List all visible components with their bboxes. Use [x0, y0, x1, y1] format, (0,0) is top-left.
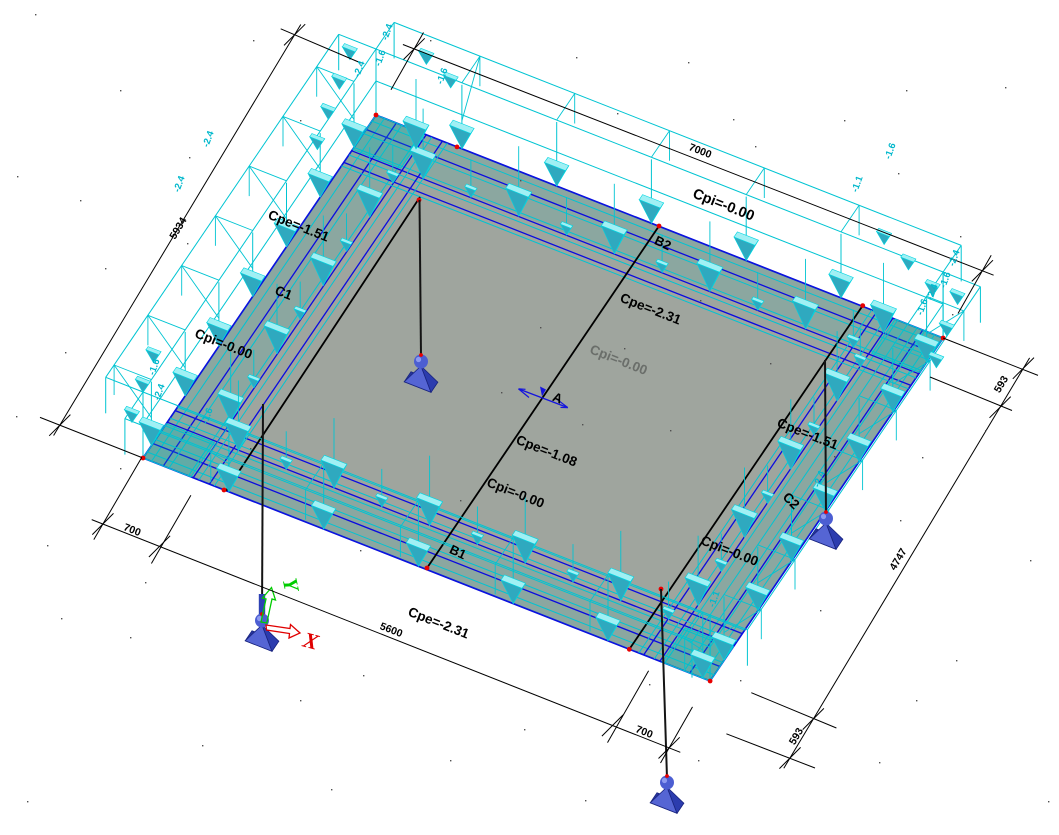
svg-text:Y: Y: [278, 576, 305, 596]
svg-text:-2.4: -2.4: [380, 22, 396, 42]
svg-text:5934: 5934: [167, 215, 189, 241]
svg-text:-2.4: -2.4: [201, 129, 217, 149]
svg-text:-2.4: -2.4: [152, 382, 168, 402]
svg-text:Cpe=-2.31: Cpe=-2.31: [406, 604, 472, 642]
svg-text:-1.6: -1.6: [883, 142, 899, 161]
svg-text:700: 700: [122, 521, 143, 539]
svg-text:Cpi=-0.00: Cpi=-0.00: [690, 186, 756, 225]
svg-text:593: 593: [992, 374, 1011, 395]
svg-text:-1.1: -1.1: [850, 174, 866, 194]
svg-text:-1.6: -1.6: [915, 298, 931, 317]
svg-text:X: X: [300, 627, 323, 656]
svg-text:4747: 4747: [887, 546, 909, 572]
svg-text:700: 700: [634, 723, 655, 741]
svg-text:-1.6: -1.6: [147, 358, 163, 377]
svg-text:5600: 5600: [378, 620, 404, 640]
svg-text:-1.6: -1.6: [373, 49, 389, 68]
svg-text:-2.4: -2.4: [352, 59, 368, 79]
svg-text:-2.4: -2.4: [947, 248, 963, 268]
svg-text:-2.4: -2.4: [172, 174, 188, 194]
svg-text:7000: 7000: [687, 141, 713, 161]
